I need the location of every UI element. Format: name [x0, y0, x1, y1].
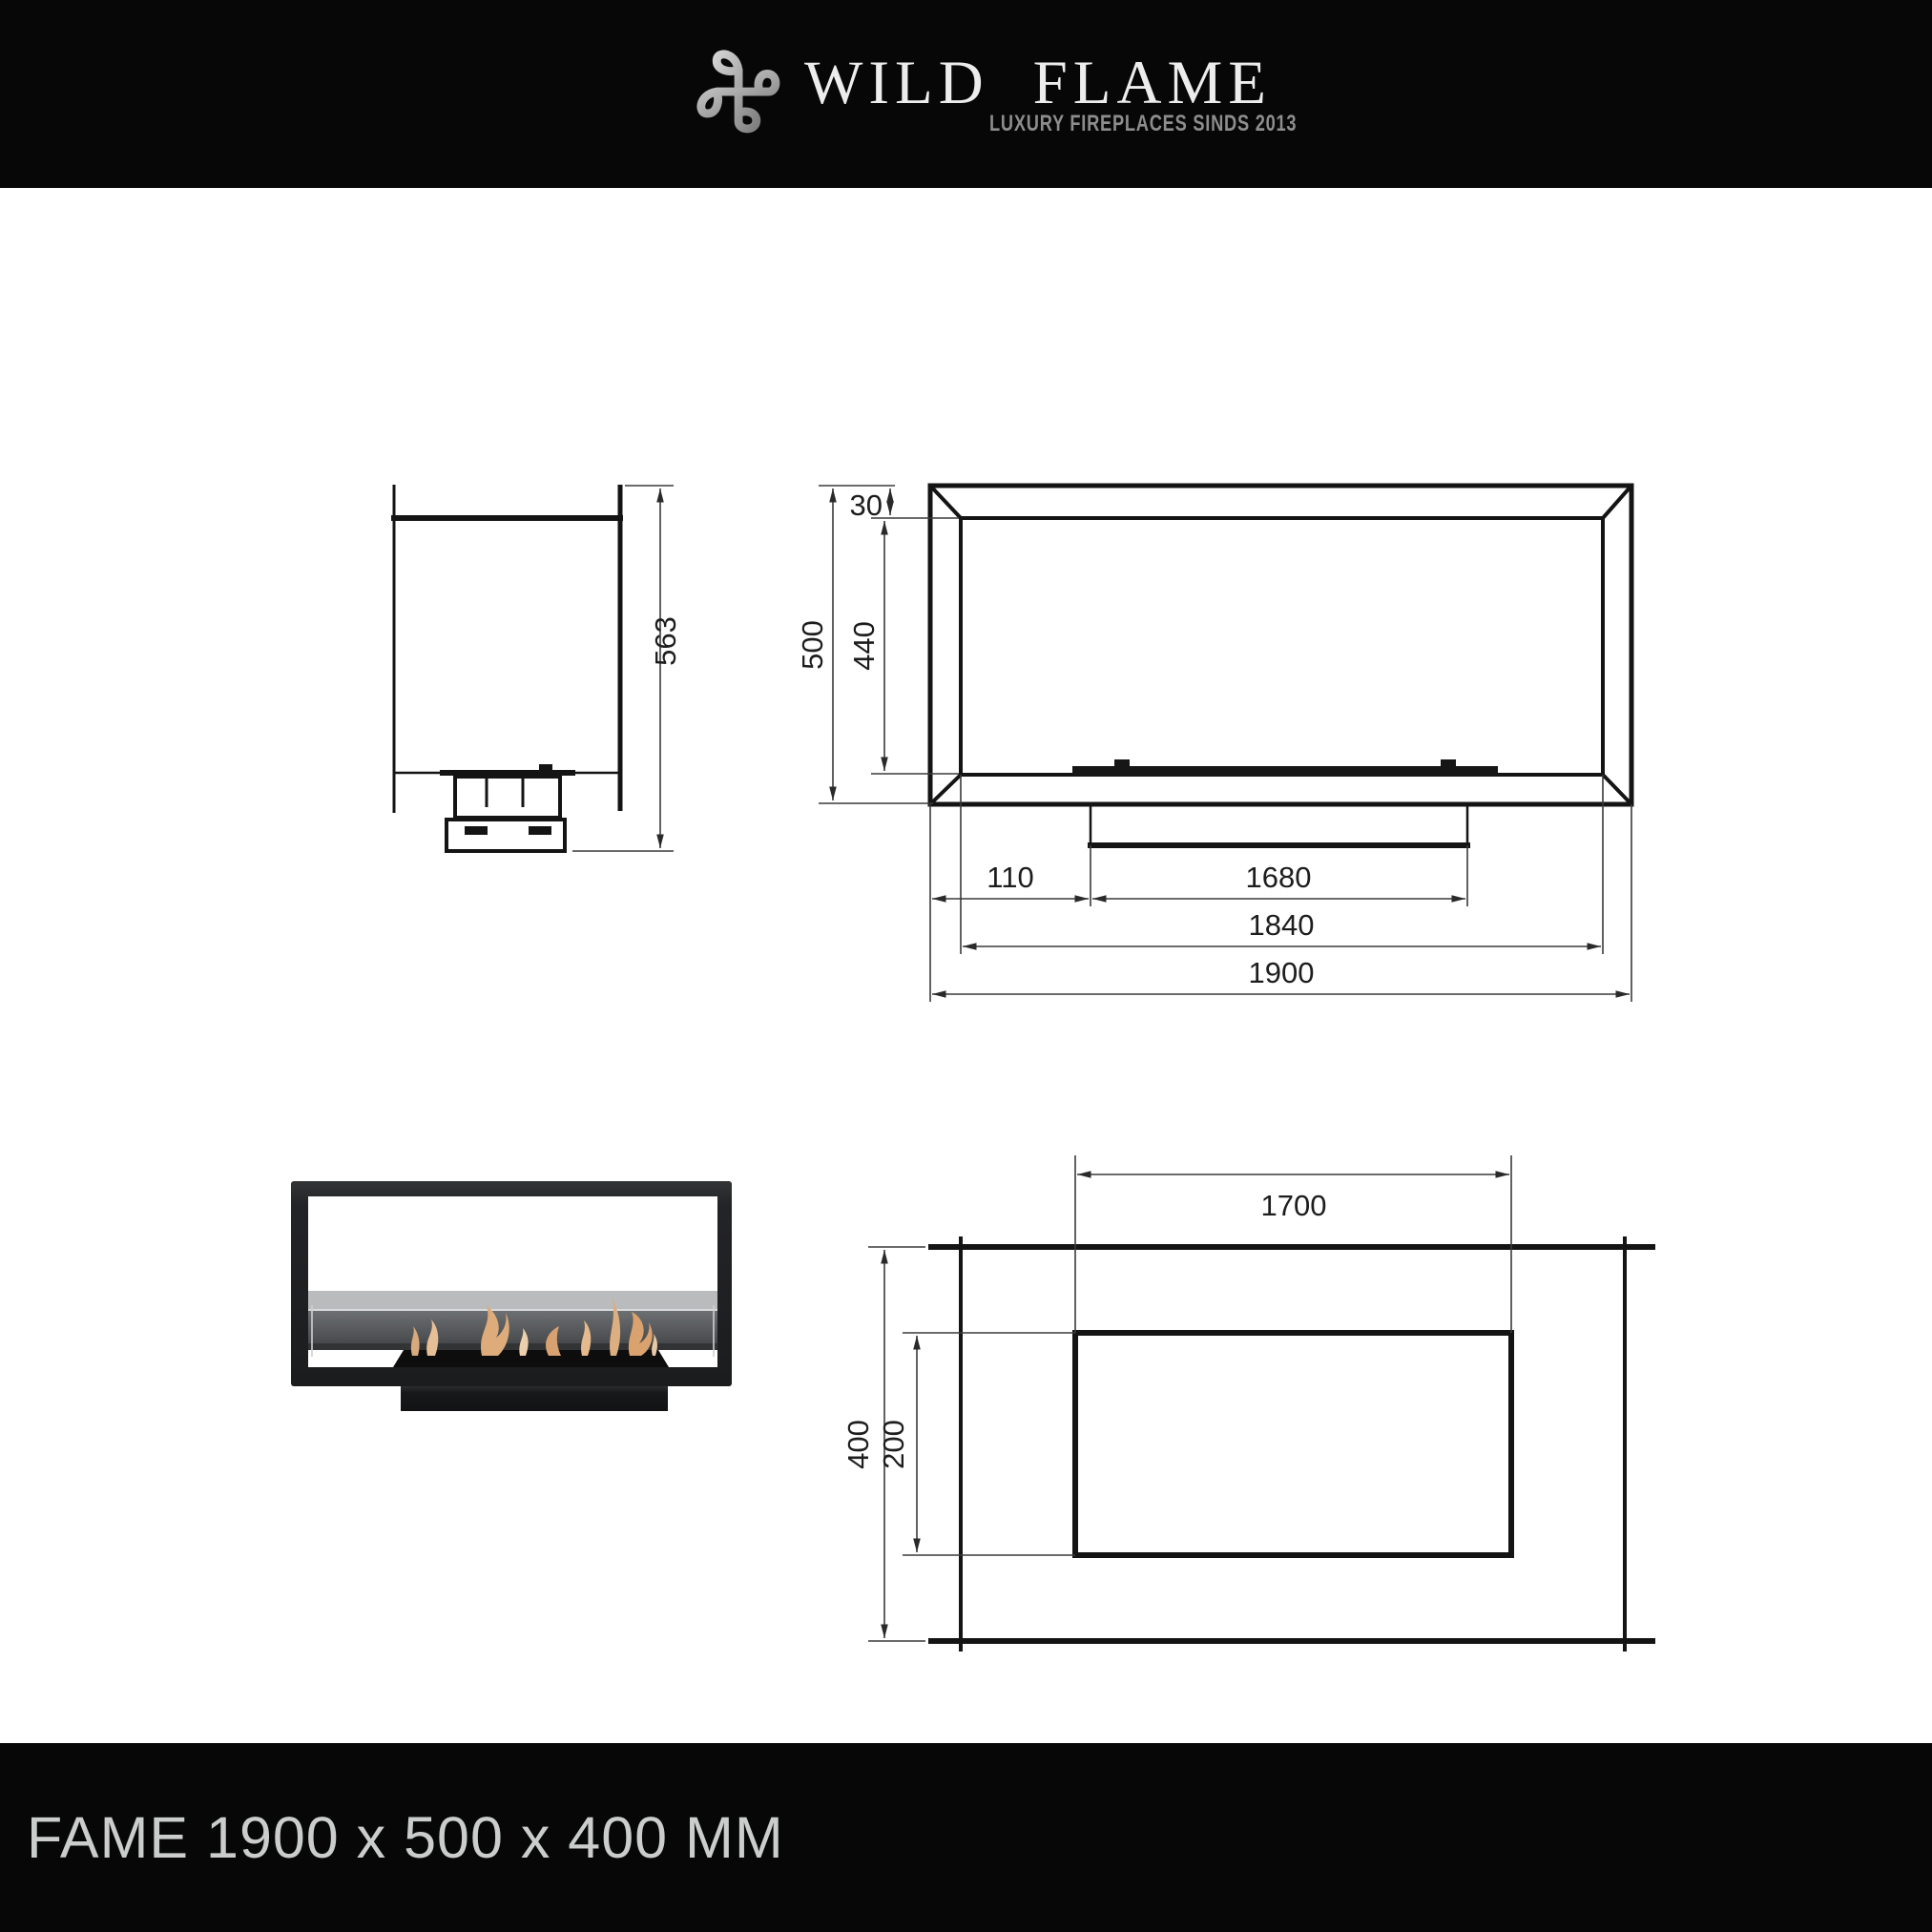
- header-band: WILDFLAME LUXURY FIREPLACES SINDS 2013: [0, 0, 1932, 188]
- spec-sheet-page: WILDFLAME LUXURY FIREPLACES SINDS 2013: [0, 0, 1932, 1932]
- front-view-drawing: 500 30 440 110 1680 1840 1900: [801, 467, 1651, 1011]
- product-photo: [281, 1169, 739, 1422]
- side-burner-box-upper: [455, 777, 560, 818]
- dim-label-1700: 1700: [1261, 1189, 1327, 1222]
- front-burner-bar: [1072, 766, 1498, 776]
- side-section-view-drawing: 563: [363, 458, 687, 868]
- photo-pedestal: [401, 1386, 668, 1411]
- brand-wordmark: WILDFLAME: [804, 48, 1272, 119]
- dim-label-200: 200: [877, 1420, 910, 1469]
- wild-flame-knot-logo-icon: [685, 40, 788, 139]
- brand-word-flame: FLAME: [1033, 49, 1272, 117]
- dim-label-1840: 1840: [1249, 908, 1315, 942]
- brand-tagline: LUXURY FIREPLACES SINDS 2013: [989, 111, 1297, 137]
- side-burner-box-lower: [447, 820, 565, 851]
- dim-label-500: 500: [801, 620, 829, 670]
- footer-band: FAME 1900 x 500 x 400 MM: [0, 1743, 1932, 1932]
- dim-label-440: 440: [847, 621, 881, 671]
- product-title: FAME 1900 x 500 x 400 MM: [27, 1804, 784, 1871]
- dim-label-1680: 1680: [1246, 861, 1312, 894]
- top-burner-opening: [1075, 1333, 1511, 1555]
- brand-word-wild: WILD: [804, 49, 989, 117]
- dim-label-563: 563: [649, 616, 682, 666]
- dim-label-1900: 1900: [1249, 956, 1315, 989]
- front-outer-frame: [930, 486, 1631, 804]
- top-view-drawing: 1700 400 200: [840, 1126, 1670, 1660]
- photo-glass-upper: [308, 1291, 717, 1309]
- front-inner-frame: [961, 518, 1603, 775]
- dim-label-400: 400: [841, 1420, 875, 1469]
- side-burner-knob: [539, 764, 552, 772]
- dim-label-110: 110: [987, 861, 1033, 894]
- dim-label-30: 30: [850, 488, 883, 522]
